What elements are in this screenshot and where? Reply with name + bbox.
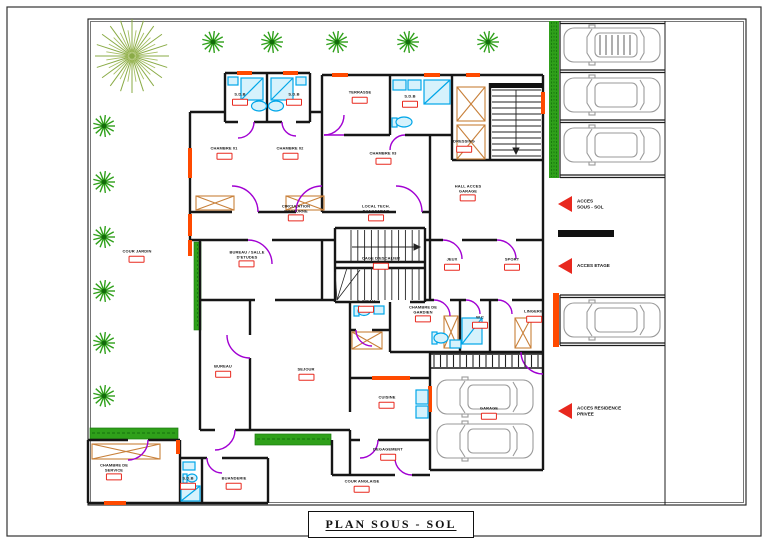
plan-title: PLAN SOUS - SOL xyxy=(325,517,456,532)
appliance-icon xyxy=(416,390,428,404)
big-tree-icon xyxy=(95,19,169,93)
parking-stalls xyxy=(560,21,665,346)
sink-icon xyxy=(450,340,461,348)
shrub-icon xyxy=(202,31,224,53)
arrow-acces-sous-sol xyxy=(558,196,572,212)
hedge-strip xyxy=(549,21,559,178)
shrub-icon xyxy=(93,332,115,354)
title-block: PLAN SOUS - SOL xyxy=(308,511,474,538)
sink-icon xyxy=(252,101,267,111)
stall-threshold xyxy=(553,293,559,347)
wc-icon xyxy=(358,307,370,316)
floor-plan-canvas: TERRASSES.D.BS.D.BS.D.BCHAMBRE 01CHAMBRE… xyxy=(0,0,768,543)
wc-icon xyxy=(183,474,187,483)
shower-icon xyxy=(181,486,200,501)
floor-plan-drawing xyxy=(0,0,768,543)
sink-icon xyxy=(269,101,284,111)
wc-icon xyxy=(228,77,238,85)
wall-block xyxy=(558,230,614,237)
sink-icon xyxy=(374,306,384,314)
car-top-view-icon xyxy=(437,421,533,461)
arrow-acces-etage xyxy=(558,258,572,274)
wc-icon xyxy=(434,333,448,343)
shrub-icon xyxy=(93,115,115,137)
appliance-icon xyxy=(416,406,428,418)
arrow-acces-residence xyxy=(558,403,572,419)
shrub-icon xyxy=(93,171,115,193)
shrub-icon xyxy=(93,385,115,407)
stair-landing xyxy=(490,83,543,88)
sink-icon xyxy=(393,80,406,90)
car-top-view-icon xyxy=(564,300,660,340)
wc-icon xyxy=(396,117,412,127)
shrub-icon xyxy=(397,31,419,53)
shrub-icon xyxy=(326,31,348,53)
wc-icon xyxy=(187,474,197,482)
shower-icon xyxy=(241,78,263,100)
sink-icon xyxy=(183,462,195,470)
shrub-icon xyxy=(261,31,283,53)
shrub-icon xyxy=(477,31,499,53)
car-top-view-icon xyxy=(437,377,533,417)
shower-icon xyxy=(424,80,450,104)
shower-icon xyxy=(462,318,482,344)
shower-icon xyxy=(271,78,293,100)
planters xyxy=(90,242,331,445)
wc-icon xyxy=(296,77,306,85)
shrub-icon xyxy=(93,280,115,302)
cars xyxy=(437,25,660,461)
car-top-view-icon xyxy=(564,75,660,115)
car-top-view-icon xyxy=(564,125,660,165)
shrub-icon xyxy=(93,226,115,248)
sink-icon xyxy=(408,80,421,90)
